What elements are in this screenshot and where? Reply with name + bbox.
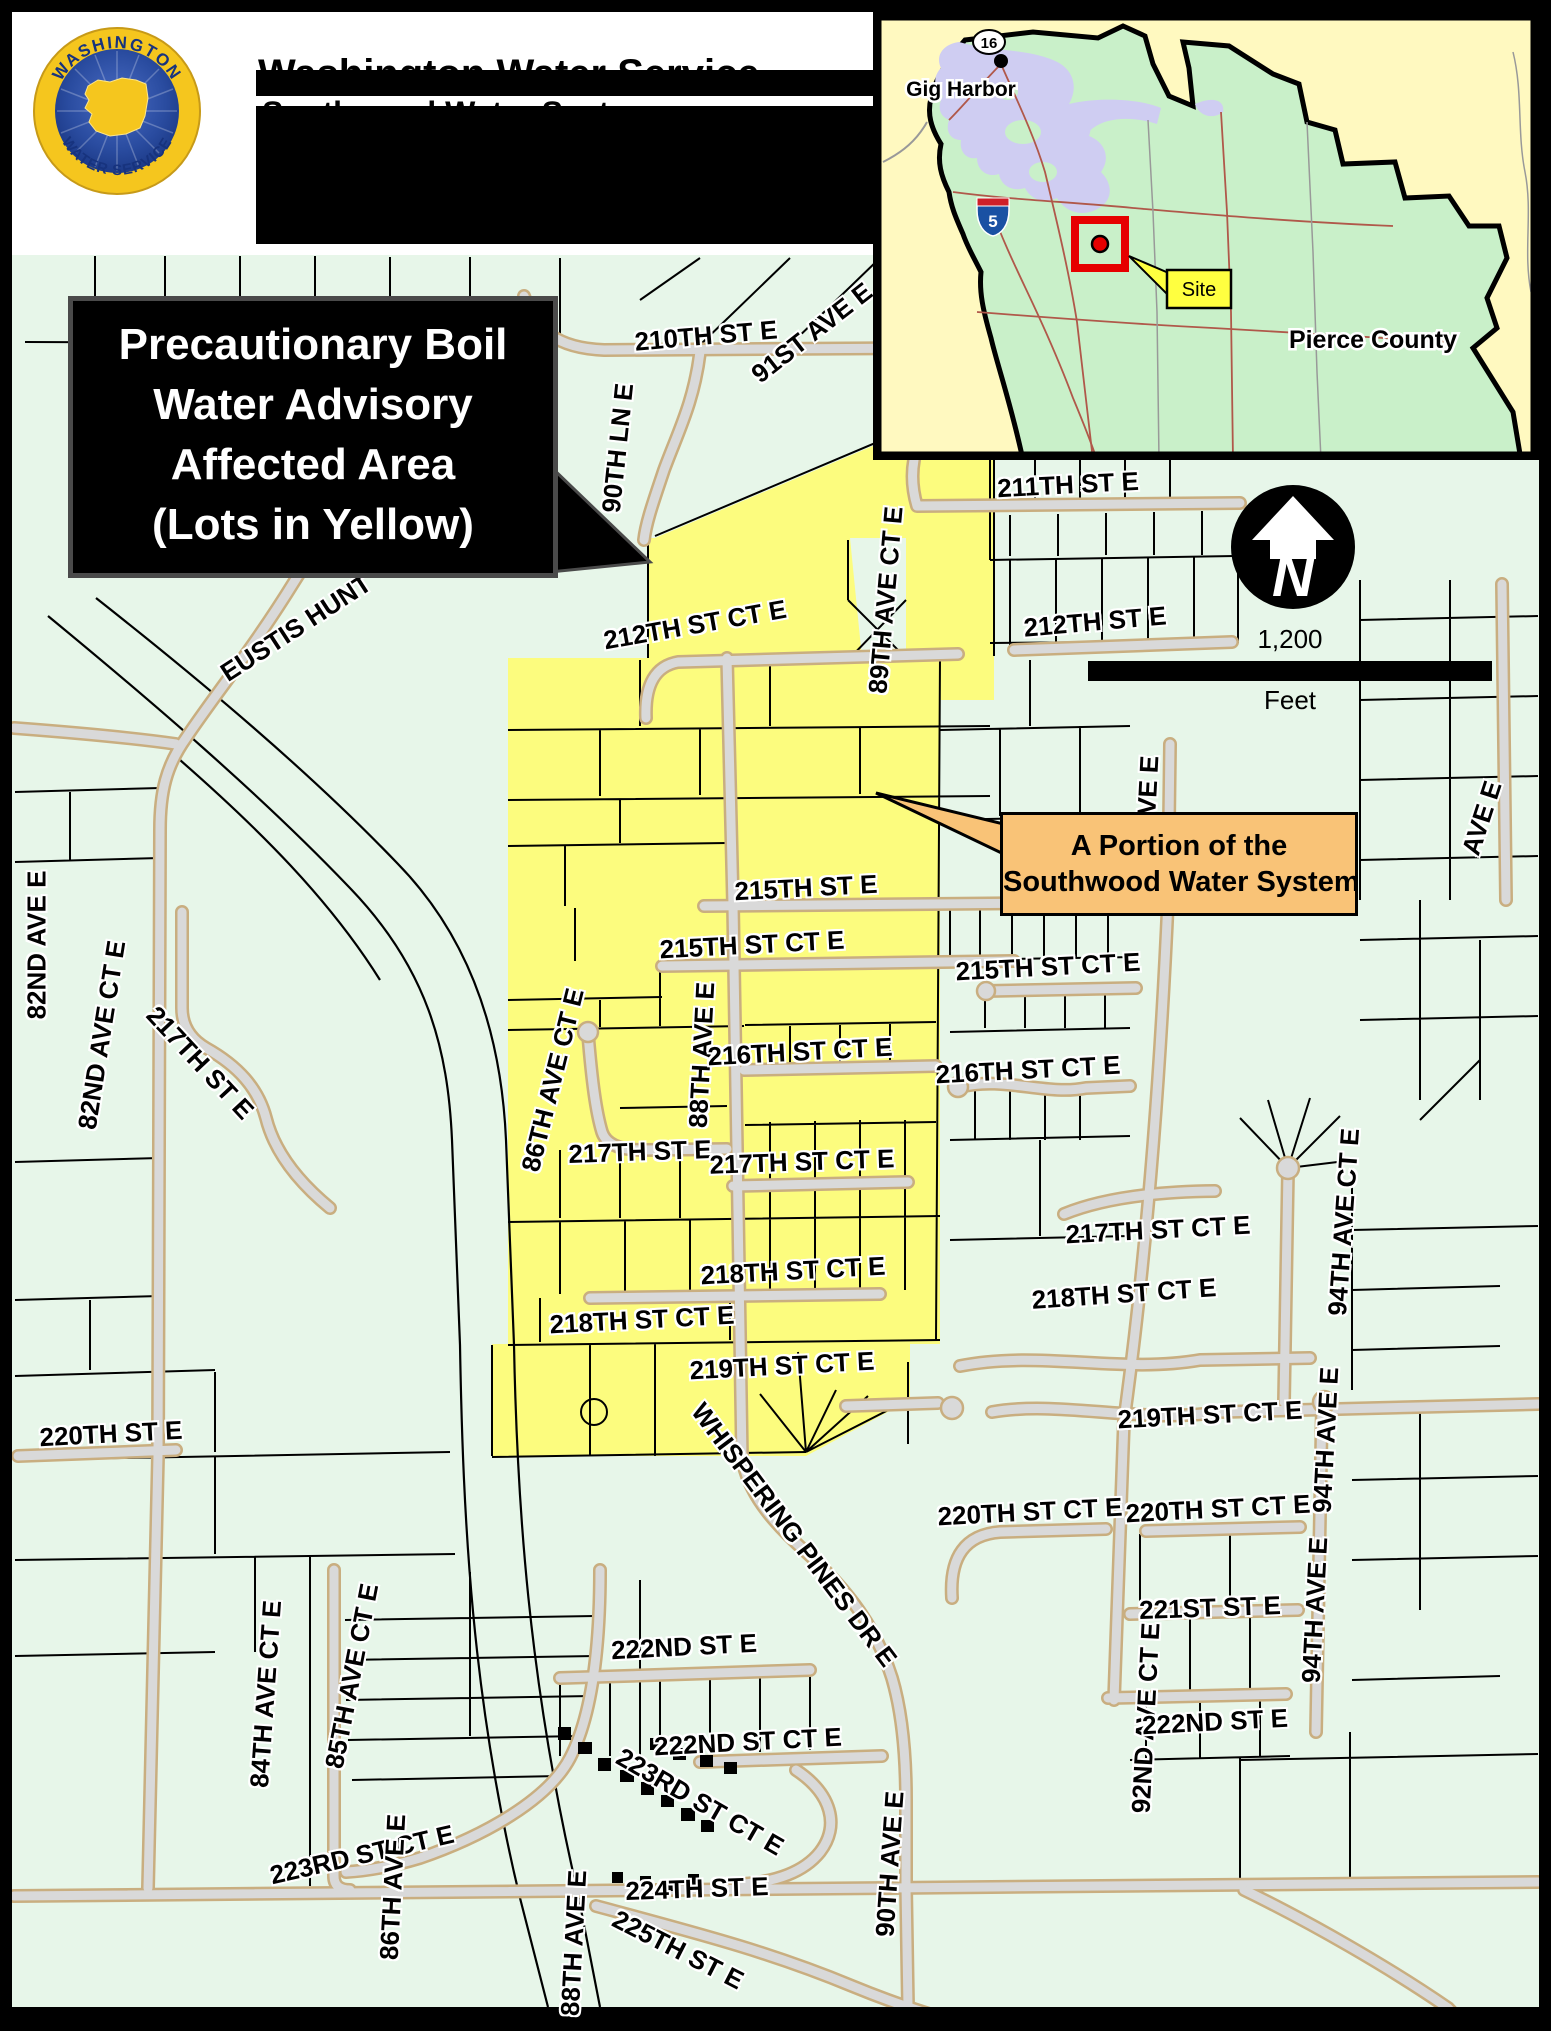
pierce-county-label: Pierce County	[1289, 326, 1457, 354]
route-16-shield: 16	[973, 30, 1005, 54]
map-document: 210TH ST E91ST AVE E90TH LN E211TH ST E2…	[0, 0, 1551, 2031]
system-line: Southwood Water System	[1003, 864, 1355, 900]
system-callout: A Portion of the Southwood Water System	[1000, 812, 1358, 916]
redaction-bar-1	[256, 70, 878, 96]
north-arrow: N	[1228, 482, 1358, 612]
advisory-line: Precautionary Boil	[73, 315, 553, 375]
advisory-line: Affected Area	[73, 435, 553, 495]
site-label: Site	[1182, 279, 1216, 301]
scale-bar-rect	[1088, 661, 1492, 681]
scale-bar: 1,200 Feet	[1080, 624, 1500, 716]
north-letter: N	[1272, 544, 1315, 609]
advisory-line: Water Advisory	[73, 375, 553, 435]
city-dot	[994, 54, 1008, 68]
svg-text:16: 16	[981, 35, 998, 52]
header-panel: WASHINGTON WATER SERVICE Washington Wate…	[12, 12, 878, 255]
scale-distance: 1,200	[1080, 624, 1500, 655]
redaction-bar-2	[256, 106, 878, 244]
washington-water-service-logo: WASHINGTON WATER SERVICE	[32, 26, 202, 196]
gig-harbor-label: Gig Harbor	[906, 78, 1016, 101]
washington-state-shape	[85, 78, 148, 136]
scale-unit: Feet	[1080, 685, 1500, 716]
system-line: A Portion of the	[1003, 828, 1355, 864]
advisory-callout: Precautionary Boil Water Advisory Affect…	[68, 296, 558, 578]
advisory-line: (Lots in Yellow)	[73, 495, 553, 555]
svg-text:5: 5	[988, 212, 997, 231]
county-inset-map: 16 Gig Harbor 5 Site Pierce County	[873, 12, 1539, 460]
redaction-gap	[12, 12, 17, 120]
